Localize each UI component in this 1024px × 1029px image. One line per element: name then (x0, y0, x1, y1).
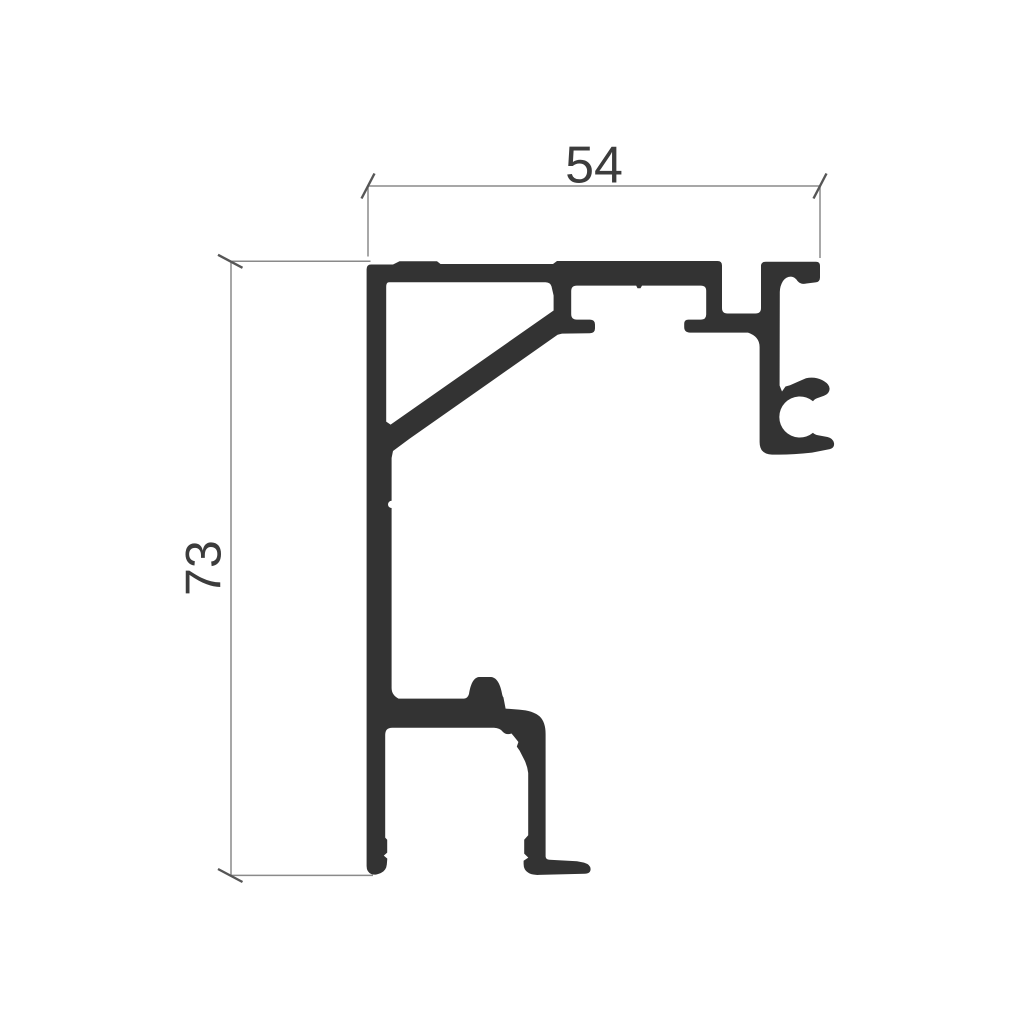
svg-text:54: 54 (565, 137, 623, 195)
svg-text:73: 73 (176, 540, 232, 596)
